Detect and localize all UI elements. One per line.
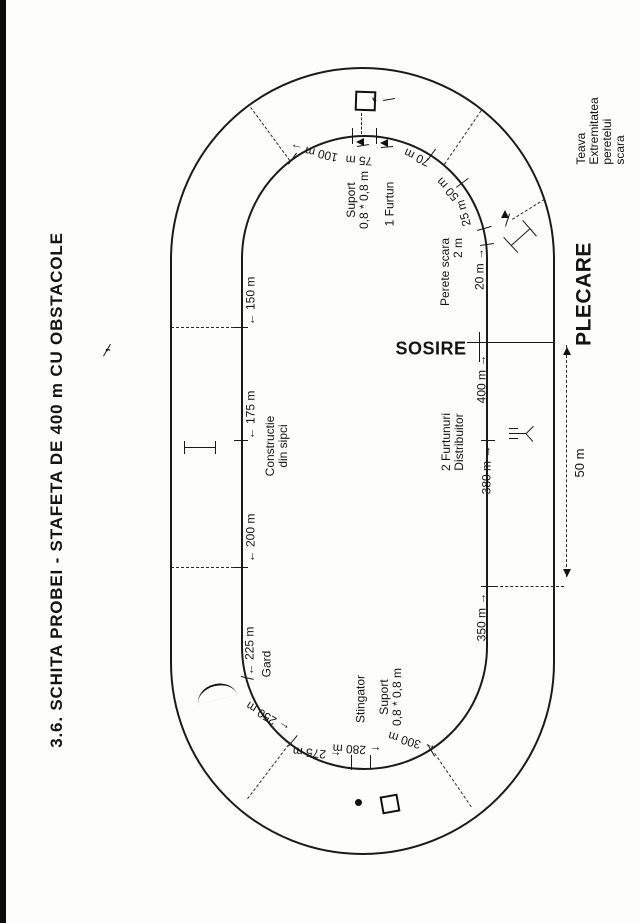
label-75m: 75 m [345,153,373,168]
dashed-guide-line [566,345,567,577]
label-suport-top: Suport 0,8 * 0,8 m [345,171,371,229]
label-constructie: Constructie din sipci [264,416,290,477]
dashed-guide-line [495,586,564,587]
diagram-line [352,128,353,144]
label-380m: 380 m → [481,446,494,495]
label-stingator: Stingator [355,675,368,723]
diagram-line [215,441,216,454]
label-plecare: PLECARE [574,242,597,346]
diagram-line [185,447,216,448]
label-teava: Teava Extremitatea peretelui scara [575,97,627,164]
diagram-line [481,586,495,587]
label-350m: 350 m → [476,593,489,642]
diagram-line [234,440,248,441]
title-cedilla-mark: , [96,348,112,352]
diagram-line [376,128,377,144]
diagram-line [509,428,518,429]
arrowhead-icon [356,138,364,146]
dashed-guide-line [361,113,362,134]
diagram-line [351,755,352,770]
dashed-guide-line [171,327,234,328]
label-175m: ← 175 m [245,391,258,440]
arrowhead-icon [501,210,509,218]
diagram-line [234,567,248,568]
diagram-line [184,441,185,454]
page-title: 3.6. SCHITA PROBEI - STAFETA DE 400 m CU… [48,232,66,747]
dimension-line-50m [563,343,572,581]
scanned-page: 3.6. SCHITA PROBEI - STAFETA DE 400 m CU… [0,0,639,923]
label-sosire: SOSIRE [395,339,466,358]
diagram-line [479,332,480,362]
diagram-line [467,342,554,343]
diagram-line [234,327,248,328]
label-400m: 400 m → [476,355,489,404]
extinguisher-dot-icon [355,799,362,806]
support-box-icon [380,794,401,815]
label-dim-50m: 50 m [573,449,587,478]
diagram-line [370,755,371,770]
diagram-line [509,433,518,434]
label-gard: Gard [261,651,274,678]
page-edge-shadow [0,0,6,923]
label-suport-bottom: Suport 0,8 * 0,8 m [378,668,404,726]
label-2-furtunuri: 2 Furtunuri Distribuitor [440,413,466,471]
label-perete-scara: Perete scara 2 m [439,238,465,306]
label-150m: ← 150 m [245,277,258,326]
label-20m: 20 m → [474,248,487,290]
label-280m: ← 280 m [332,741,381,756]
label-1-furtun: 1 Furtun [384,182,397,227]
arrowhead-icon [563,347,571,355]
arrowhead-icon [380,139,388,147]
dashed-guide-line [171,567,234,568]
diagram-line [509,438,518,439]
arrowhead-icon [563,569,571,577]
label-200m: ← 200 m [245,514,258,563]
label-225m: ← 225 m [244,627,257,676]
diagram-line [481,440,495,441]
